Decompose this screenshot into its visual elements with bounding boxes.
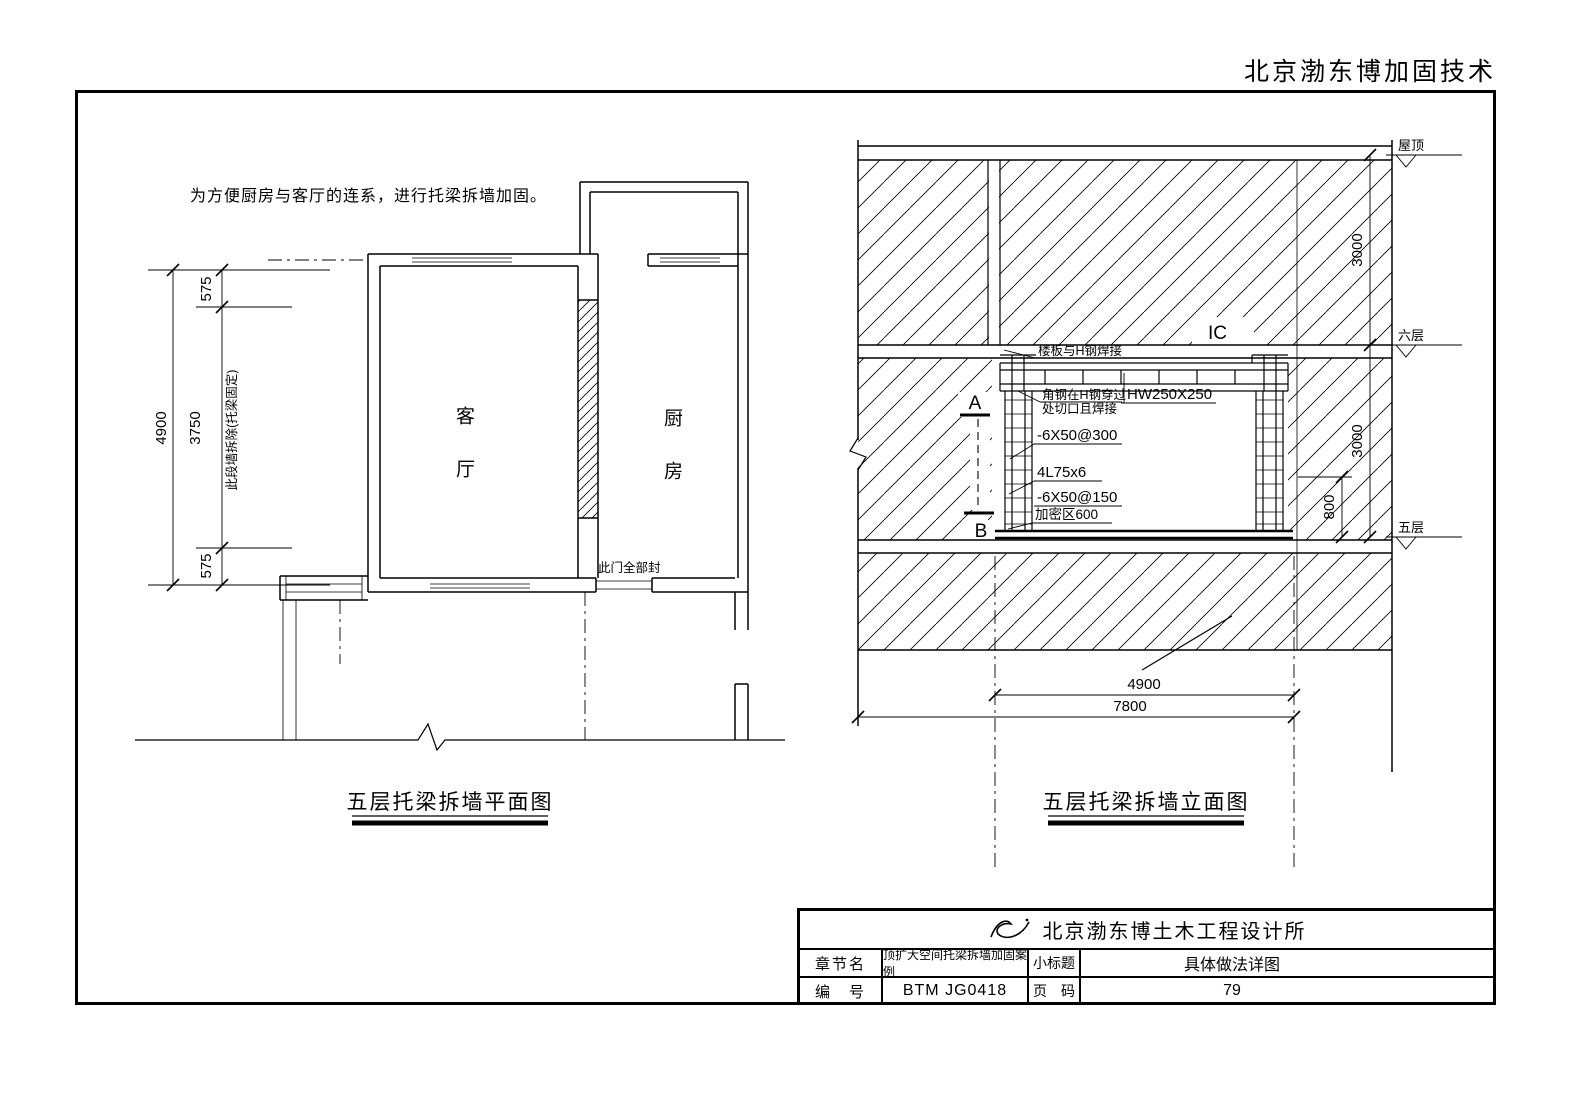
- section-mark-a: A: [969, 393, 982, 414]
- chapter-value: 顶扩大空间托梁拆墙加固案例: [881, 950, 1027, 976]
- level-label-6f: 六层: [1398, 328, 1424, 343]
- title-block: 北京渤东博土木工程设计所 章节名 顶扩大空间托梁拆墙加固案例 小标题 具体做法详…: [797, 908, 1496, 1005]
- dim-beam-zone: 800: [1321, 494, 1338, 519]
- elevation: A B IC 楼板与H钢焊接 角钢在H钢穿过 处切口且焊接 HW250X250 …: [850, 138, 1462, 868]
- plan-dim-mid: 3750: [187, 411, 204, 444]
- dim-storey-upper: 3000: [1349, 233, 1366, 266]
- plan-dim-lines: [148, 270, 330, 585]
- title-block-row-chapter: 章节名 顶扩大空间托梁拆墙加固案例 小标题 具体做法详图: [800, 948, 1493, 976]
- plan-centerlines: [268, 260, 585, 740]
- level-triangle-roof: [1396, 155, 1416, 167]
- ann-angle-spec: 4L75x6: [1037, 464, 1086, 481]
- ann-dense-zone: 加密区600: [1035, 506, 1098, 522]
- page-label: 页 码: [1027, 978, 1079, 1004]
- demolished-wall-hatch: [578, 300, 598, 518]
- chapter-label: 章节名: [800, 950, 881, 976]
- plan-dim-bottom: 575: [198, 553, 215, 578]
- plan-dim-top: 575: [198, 276, 215, 301]
- dim-overall: 7800: [1113, 698, 1146, 715]
- masonry-hatch-upper: [858, 160, 1392, 345]
- drawing-sheet: 北京渤东博加固技术 为方便厨房与客厅的连系，进行托梁拆墙加固。 客厅 厨房: [0, 0, 1571, 1098]
- subtitle-label: 小标题: [1027, 950, 1079, 976]
- plan-break-line: [135, 724, 785, 750]
- masonry-hatch-mid-right: [1288, 358, 1392, 540]
- elev-bottom-dim-ticks: [852, 689, 1300, 723]
- pier-gap: [989, 161, 999, 344]
- company-name: 北京渤东博土木工程设计所: [1043, 915, 1307, 944]
- title-block-row-number: 编 号 BTM JG0418 页 码 79: [800, 976, 1493, 1004]
- level-triangle-6f: [1396, 345, 1416, 357]
- masonry-hatch-lower: [858, 553, 1392, 650]
- steel-sill: [995, 531, 1293, 538]
- level-label-roof: 屋顶: [1398, 138, 1424, 153]
- floor-plan: 4900 575 3750 575 此段墙拆除(托梁固定) 此门全部封 五层托梁…: [135, 182, 785, 823]
- elev-bottom-dim-lines: [858, 695, 1294, 717]
- ann-beam-spec: HW250X250: [1127, 386, 1212, 403]
- plan-dim-overall: 4900: [153, 411, 170, 444]
- ann-plate300: -6X50@300: [1037, 427, 1117, 444]
- plan-wall-note: 此段墙拆除(托梁固定): [224, 370, 239, 491]
- ann-angle-line2: 处切口且焊接: [1042, 401, 1118, 416]
- ann-slab-weld: 楼板与H钢焊接: [1038, 343, 1123, 358]
- elevation-caption: 五层托梁拆墙立面图: [1043, 791, 1250, 814]
- plan-caption: 五层托梁拆墙平面图: [347, 791, 554, 814]
- title-block-company-row: 北京渤东博土木工程设计所: [800, 911, 1493, 948]
- dim-storey-lower: 3000: [1349, 424, 1366, 457]
- plan-door-note: 此门全部封: [598, 560, 661, 575]
- section-line-gap: [970, 416, 990, 510]
- number-label: 编 号: [800, 978, 881, 1004]
- level-triangle-5f: [1396, 537, 1416, 549]
- number-value: BTM JG0418: [881, 978, 1027, 1004]
- ann-angle-line1: 角钢在H钢穿过: [1042, 387, 1127, 402]
- level-label-5f: 五层: [1398, 520, 1424, 535]
- plan-thin-lines: [283, 258, 720, 740]
- ann-plate150: -6X50@150: [1037, 489, 1117, 506]
- section-mark-b: B: [975, 521, 988, 542]
- dim-opening: 4900: [1127, 676, 1160, 693]
- page-value: 79: [1079, 978, 1493, 1004]
- plan-walls: [280, 182, 748, 740]
- section-mark-c: IC: [1208, 323, 1227, 344]
- company-logo: [987, 915, 1033, 945]
- subtitle-value: 具体做法详图: [1079, 950, 1493, 976]
